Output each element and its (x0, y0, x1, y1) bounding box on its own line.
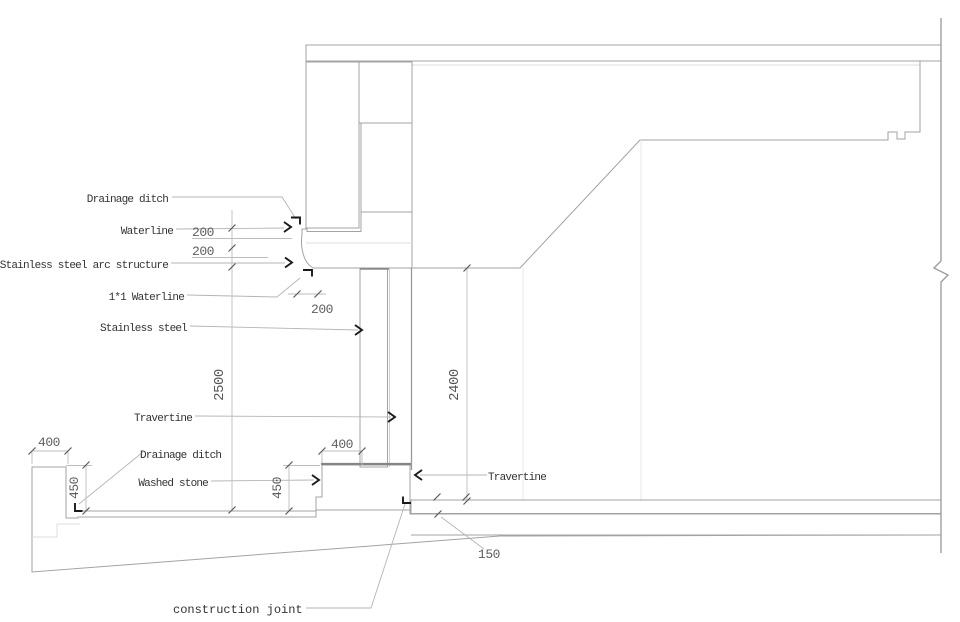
beam-soffit-mass (412, 61, 920, 268)
label-drainage-ditch-top: Drainage ditch (87, 194, 168, 206)
fascia-panel (306, 62, 359, 228)
wall-cladding-stipple (360, 268, 388, 467)
label-waterline: Waterline (121, 226, 173, 238)
curb-step-lines (32, 524, 80, 537)
cove-soffit (301, 212, 412, 268)
label-washed-stone: Washed stone (138, 478, 208, 490)
label-waterline-1x1: 1*1 Waterline (109, 292, 185, 304)
dim-2500: 2500 (212, 369, 228, 401)
top-slab (306, 45, 941, 61)
dim-200-upper: 200 (192, 225, 214, 240)
label-construction-joint: construction joint (173, 603, 303, 617)
dim-150-floor: 150 (478, 547, 500, 562)
leader-drainage-bottom (79, 452, 143, 504)
break-line (934, 18, 948, 553)
dim-2400: 2400 (447, 369, 463, 401)
dim-450-curb: 450 (67, 477, 82, 499)
plinth (316, 465, 410, 510)
leader-150 (441, 517, 484, 549)
label-drainage-ditch-bottom: Drainage ditch (140, 450, 221, 462)
section-drawing: Drainage ditch Waterline Stainless steel… (0, 0, 960, 622)
label-stainless-steel-arc: Stainless steel arc structure (0, 260, 168, 272)
arrow-arc-structure (285, 258, 292, 268)
leader-waterline-1x1 (187, 278, 300, 297)
dim-400-plinth: 400 (331, 437, 353, 452)
label-travertine-left: Travertine (134, 413, 192, 425)
dim-200-arc: 200 (311, 302, 333, 317)
corner-mark-drainage-bottom (75, 503, 83, 511)
floor-travertine-strip (411, 500, 941, 514)
corner-mark-waterline-1x1 (303, 270, 312, 277)
label-stainless-steel: Stainless steel (100, 323, 187, 335)
arrow-waterline (284, 222, 291, 232)
dim-450-plinth: 450 (270, 477, 285, 499)
leader-stainless-steel (190, 326, 358, 330)
section-drawing-svg: Drainage ditch Waterline Stainless steel… (0, 0, 960, 622)
label-travertine-right: Travertine (488, 472, 546, 484)
beam-block (359, 62, 412, 123)
leader-washed-stone (211, 480, 314, 481)
leader-travertine-left (195, 416, 391, 417)
leader-construction-joint (306, 504, 405, 608)
dim-200-lower: 200 (192, 244, 214, 259)
leader-drainage-top (172, 197, 296, 219)
dim-400-curb: 400 (38, 435, 60, 450)
